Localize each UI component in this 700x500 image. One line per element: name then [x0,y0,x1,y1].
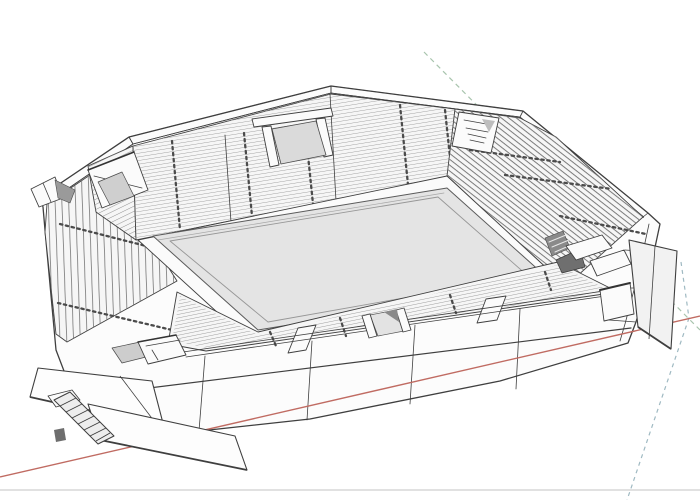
stadium-drawing [0,0,700,500]
model-viewport[interactable] [0,0,700,500]
doorway-southwest [54,428,66,442]
vomitory-northeast [452,112,499,153]
